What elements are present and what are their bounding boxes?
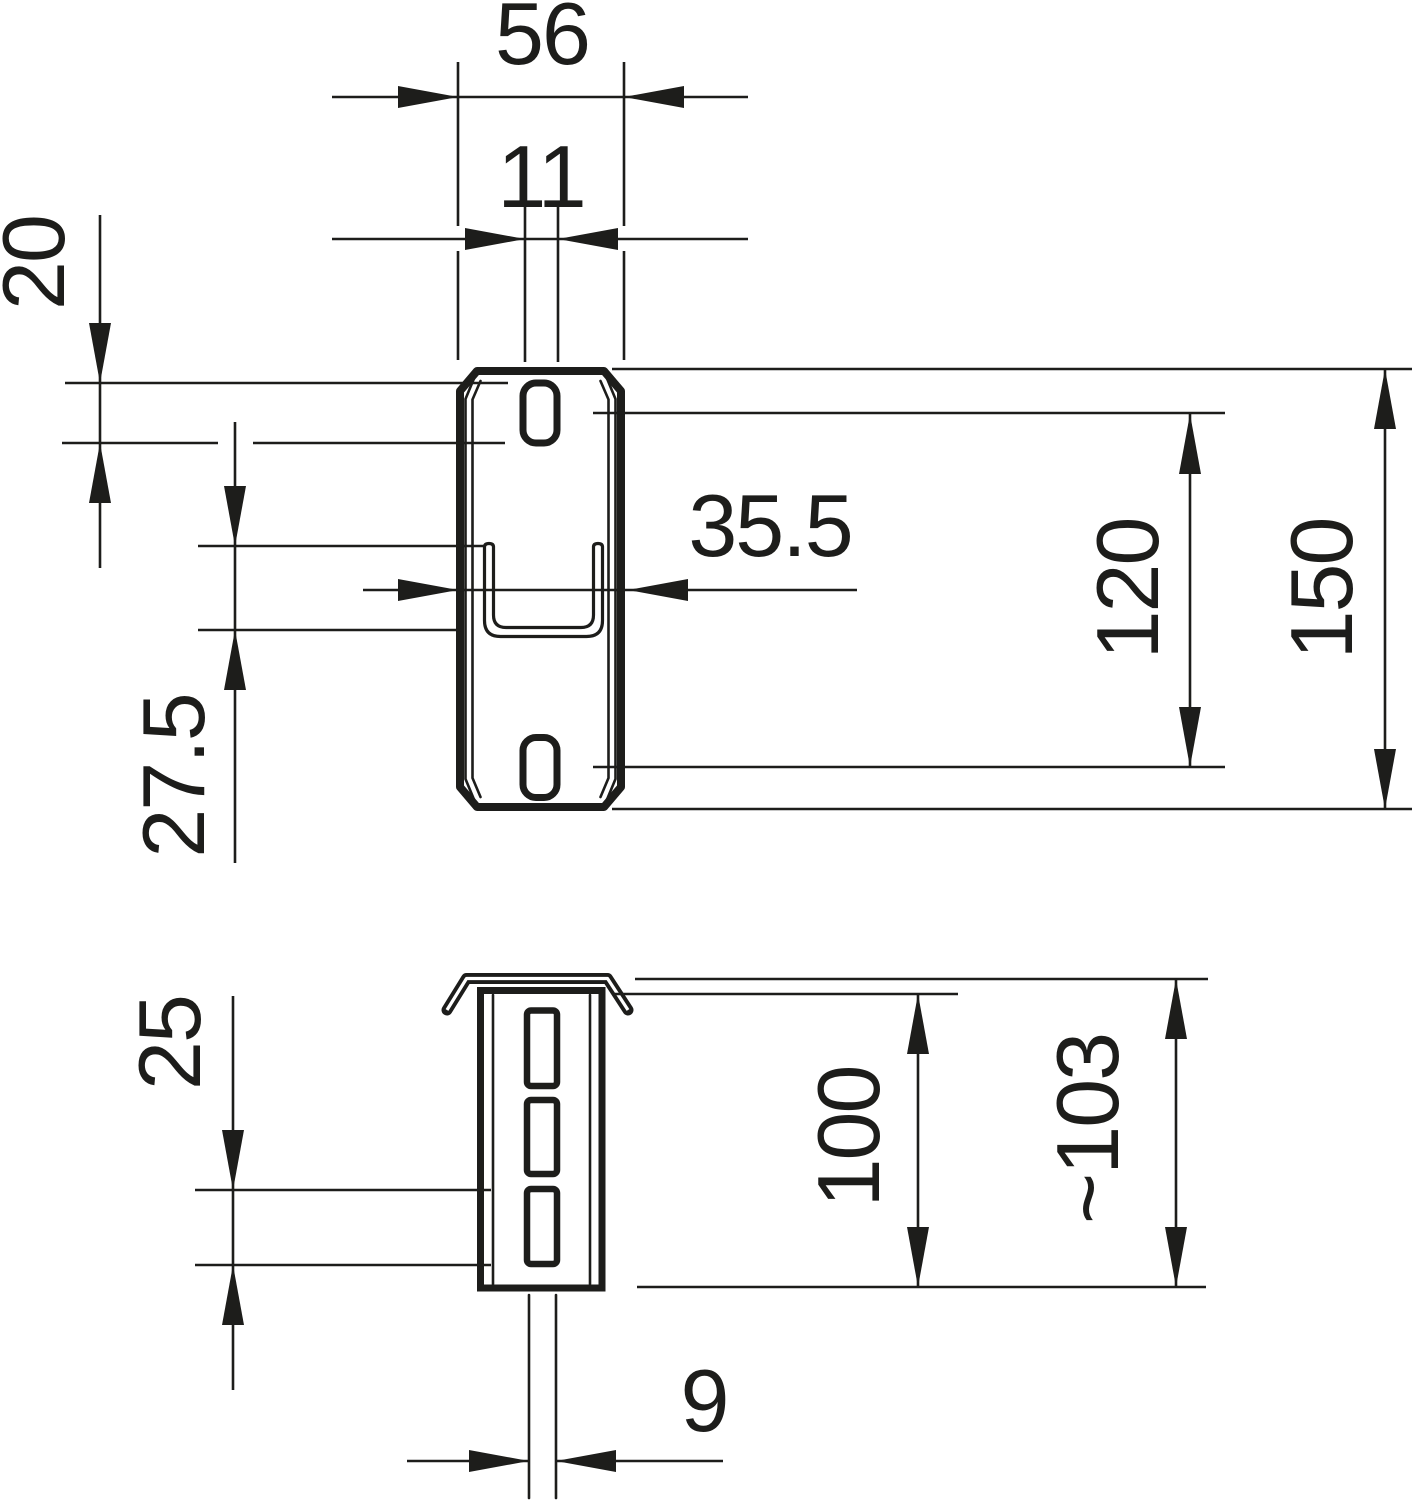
dim-label-tail-gap: 9 <box>681 1351 728 1450</box>
arrow-down-icon <box>1165 1227 1187 1287</box>
arrow-down-icon <box>1374 749 1396 809</box>
dim-label-slot-spacing: 120 <box>1078 519 1177 660</box>
side-slot-3 <box>527 1189 557 1264</box>
dimension-slot-width: 11 <box>332 127 748 362</box>
dim-label-side-slot-length: 25 <box>120 996 219 1090</box>
arrow-up-icon <box>907 994 929 1054</box>
dimension-side-slot-length: 25 <box>120 996 491 1390</box>
arrow-right-icon <box>398 86 458 108</box>
drawing-canvas: 56 11 20 27.5 35.5 120 <box>0 0 1423 1500</box>
arrow-left-icon <box>556 1450 616 1472</box>
dim-label-slot-length: 20 <box>0 216 83 310</box>
dim-label-notch-width: 35.5 <box>688 476 851 575</box>
side-slot-2 <box>527 1100 557 1174</box>
dim-label-overall-height: ~103 <box>1038 1034 1137 1224</box>
arrow-down-icon <box>222 1130 244 1190</box>
arrow-left-icon <box>624 86 684 108</box>
dim-label-notch-depth: 27.5 <box>124 694 223 857</box>
dim-label-slot-width: 11 <box>497 127 584 226</box>
dim-label-overall-length: 150 <box>1272 519 1371 660</box>
arrow-down-icon <box>1179 707 1201 767</box>
dimension-tail-gap: 9 <box>407 1351 727 1472</box>
front-bottom-slot <box>523 738 557 798</box>
dimension-notch-depth: 27.5 <box>124 422 484 863</box>
arrow-down-icon <box>907 1227 929 1287</box>
front-top-slot <box>523 383 557 443</box>
dimension-slot-length: 20 <box>0 215 508 568</box>
arrow-right-icon <box>465 228 525 250</box>
arrow-right-icon <box>398 579 458 601</box>
arrow-up-icon <box>1179 414 1201 474</box>
arrow-down-icon <box>224 486 246 546</box>
arrow-right-icon <box>469 1450 529 1472</box>
ext-lines-20 <box>62 383 508 443</box>
side-view-part <box>447 979 628 1499</box>
dim-label-overall-width: 56 <box>495 0 589 83</box>
dim-label-profile-height: 100 <box>799 1067 898 1208</box>
technical-drawing: 56 11 20 27.5 35.5 120 <box>0 0 1423 1500</box>
arrow-up-icon <box>1165 979 1187 1039</box>
arrow-left-icon <box>558 228 618 250</box>
side-slot-1 <box>527 1011 557 1087</box>
arrow-up-icon <box>222 1265 244 1325</box>
arrow-up-icon <box>89 443 111 503</box>
arrow-up-icon <box>224 630 246 690</box>
arrow-down-icon <box>89 323 111 383</box>
dimension-profile-height: 100 <box>613 994 958 1287</box>
ext-lines-25 <box>195 1190 491 1265</box>
ext-lines-11 <box>525 205 558 362</box>
arrow-up-icon <box>1374 369 1396 429</box>
arrow-left-icon <box>628 579 688 601</box>
